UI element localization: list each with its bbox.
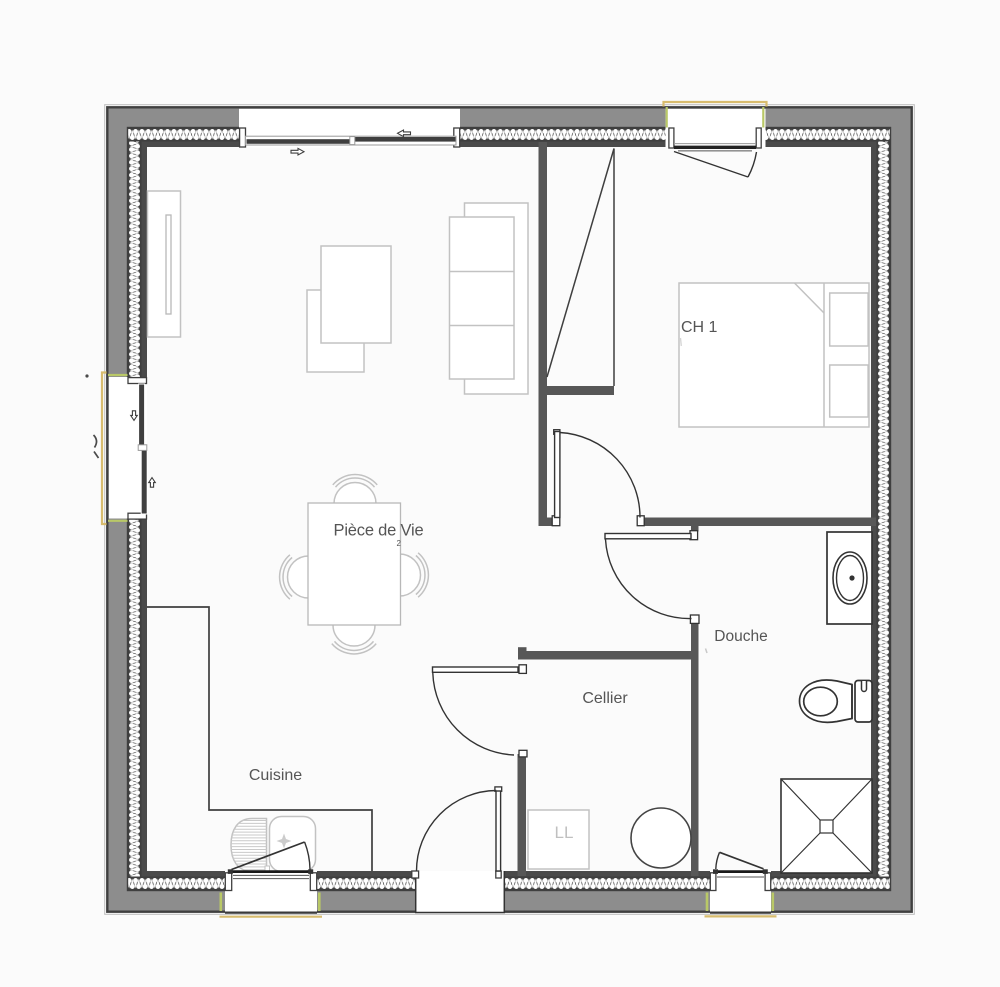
svg-text:Pièce de Vie: Pièce de Vie [334,522,424,540]
svg-text:Cuisine: Cuisine [249,767,302,784]
svg-text:Douche: Douche [714,628,767,645]
svg-text:CH 1: CH 1 [681,319,718,336]
svg-text:Cellier: Cellier [582,690,628,707]
svg-text:LL: LL [555,823,574,842]
svg-text:2: 2 [397,539,402,548]
